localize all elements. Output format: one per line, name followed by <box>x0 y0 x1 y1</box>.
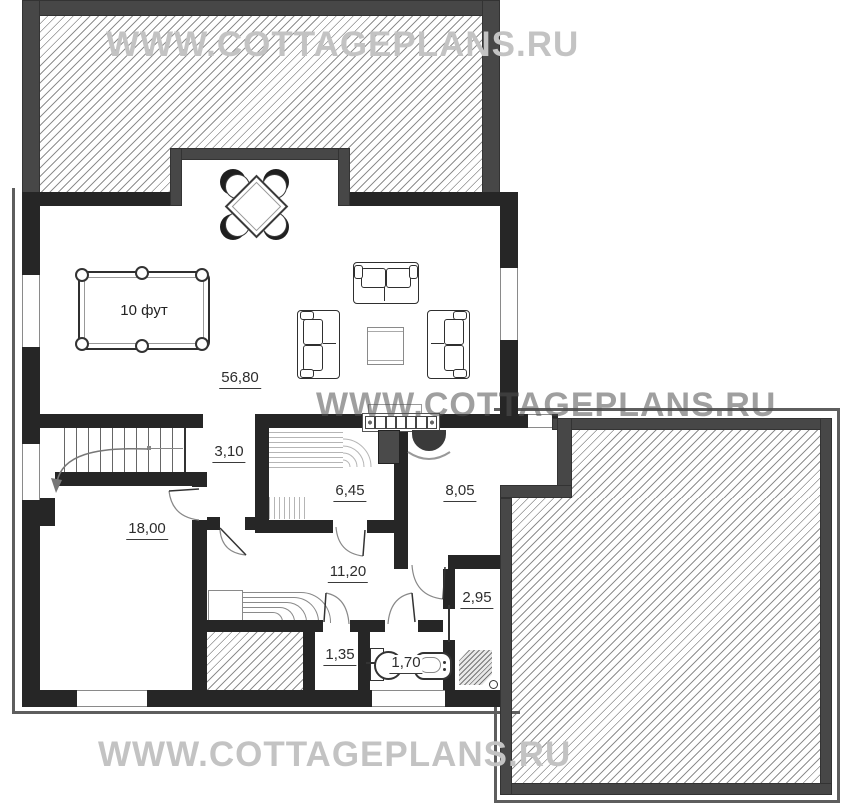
room-area-label-shower: 2,95 <box>460 590 493 609</box>
wall-segment <box>207 517 220 530</box>
billiard-table: 10 фут <box>78 271 210 350</box>
billiard-pocket <box>135 339 149 353</box>
wall-segment <box>500 192 518 268</box>
sofa-seat-line <box>384 287 385 301</box>
wall-segment <box>358 620 370 690</box>
watermark-text: WWW.COTTAGEPLANS.RU <box>98 737 571 772</box>
room-area-label-hallway: 11,20 <box>328 564 368 583</box>
wall-segment <box>820 418 832 795</box>
sofa-right <box>427 310 470 379</box>
wall-segment <box>350 192 518 206</box>
sauna-bench-fan <box>343 439 371 467</box>
sofa-seat-line <box>323 343 336 344</box>
wall-segment <box>394 555 408 569</box>
room-area-label-living: 56,80 <box>219 370 261 389</box>
window <box>372 690 445 707</box>
wall-segment <box>22 500 40 707</box>
sofa-two-seat <box>353 262 419 304</box>
sofa-seat-line <box>431 343 444 344</box>
garage-hatch <box>572 430 820 498</box>
room-area-label-wc: 1,35 <box>323 647 356 666</box>
billiard-pocket <box>75 268 89 282</box>
billiard-pocket <box>135 266 149 280</box>
watermark-text: WWW.COTTAGEPLANS.RU <box>106 27 579 62</box>
shower-tray <box>459 650 492 685</box>
window <box>22 275 40 347</box>
sauna-heater <box>378 430 400 464</box>
room-area-label-bedroom: 18,00 <box>126 521 168 540</box>
sofa-armrest <box>354 265 363 279</box>
wall-segment <box>255 414 269 533</box>
sofa-cushion <box>361 268 386 288</box>
bathtub-tap <box>443 661 446 664</box>
billiard-pocket <box>75 337 89 351</box>
stair-rail <box>150 448 183 449</box>
sofa-cushion <box>444 345 464 371</box>
floor-plan-canvas: 10 фут <box>0 0 842 807</box>
room-area-label-stair-hall: 3,10 <box>212 444 245 463</box>
sofa-cushion <box>444 319 464 345</box>
sofa-armrest <box>300 311 314 320</box>
exterior-outline <box>837 408 840 803</box>
coffee-table-edge <box>368 360 403 361</box>
door-leaf <box>448 605 450 642</box>
wall-segment <box>338 148 350 206</box>
wall-segment <box>303 620 315 707</box>
sofa-cushion <box>386 268 411 288</box>
sofa-armrest <box>453 311 467 320</box>
billiard-table-label: 10 фут <box>80 302 208 319</box>
window <box>22 444 40 500</box>
exterior-outline <box>12 188 15 714</box>
wall-segment <box>22 206 40 275</box>
sofa-armrest <box>453 369 467 378</box>
watermark-text: WWW.COTTAGEPLANS.RU <box>316 388 776 422</box>
wall-segment <box>22 428 40 444</box>
room-area-label-fireplace-room: 8,05 <box>443 483 476 502</box>
wall-segment <box>55 472 207 486</box>
wall-segment <box>443 569 455 609</box>
wall-segment <box>170 148 350 160</box>
stair-landing <box>208 590 243 622</box>
stair-treads <box>64 428 186 472</box>
sink-tap <box>366 662 375 664</box>
sofa-armrest <box>300 369 314 378</box>
exterior-outline <box>12 711 520 714</box>
wall-segment <box>22 192 170 206</box>
wall-segment <box>40 498 55 526</box>
shower-drain <box>489 680 498 689</box>
wall-segment <box>22 0 40 206</box>
wall-segment <box>255 520 333 533</box>
wall-segment <box>418 620 443 632</box>
wall-segment <box>22 414 203 428</box>
sofa-armrest <box>409 265 418 279</box>
coffee-table-edge <box>368 331 403 332</box>
sofa-cushion <box>303 345 323 371</box>
sauna-benches <box>269 497 305 519</box>
sofa-left <box>297 310 340 379</box>
window <box>500 268 518 340</box>
wall-segment <box>22 0 500 16</box>
sofa-cushion <box>303 319 323 345</box>
porch-hatch <box>207 632 303 690</box>
room-area-label-sauna: 6,45 <box>333 483 366 502</box>
room-area-label-bathroom: 1,70 <box>389 655 422 674</box>
window <box>77 690 147 707</box>
door-opening <box>192 487 207 520</box>
billiard-pocket <box>195 268 209 282</box>
wall-segment <box>170 148 182 206</box>
fireplace-hearth-arc <box>408 452 450 459</box>
sauna-benches <box>269 432 343 471</box>
billiard-pocket <box>195 337 209 351</box>
wall-segment <box>500 485 572 498</box>
wall-segment <box>500 783 832 795</box>
fireplace-hearth <box>412 430 446 451</box>
exterior-outline <box>494 800 840 803</box>
stair-rail-post <box>147 446 151 450</box>
bathtub-tap <box>443 668 446 671</box>
coffee-table <box>367 327 404 365</box>
